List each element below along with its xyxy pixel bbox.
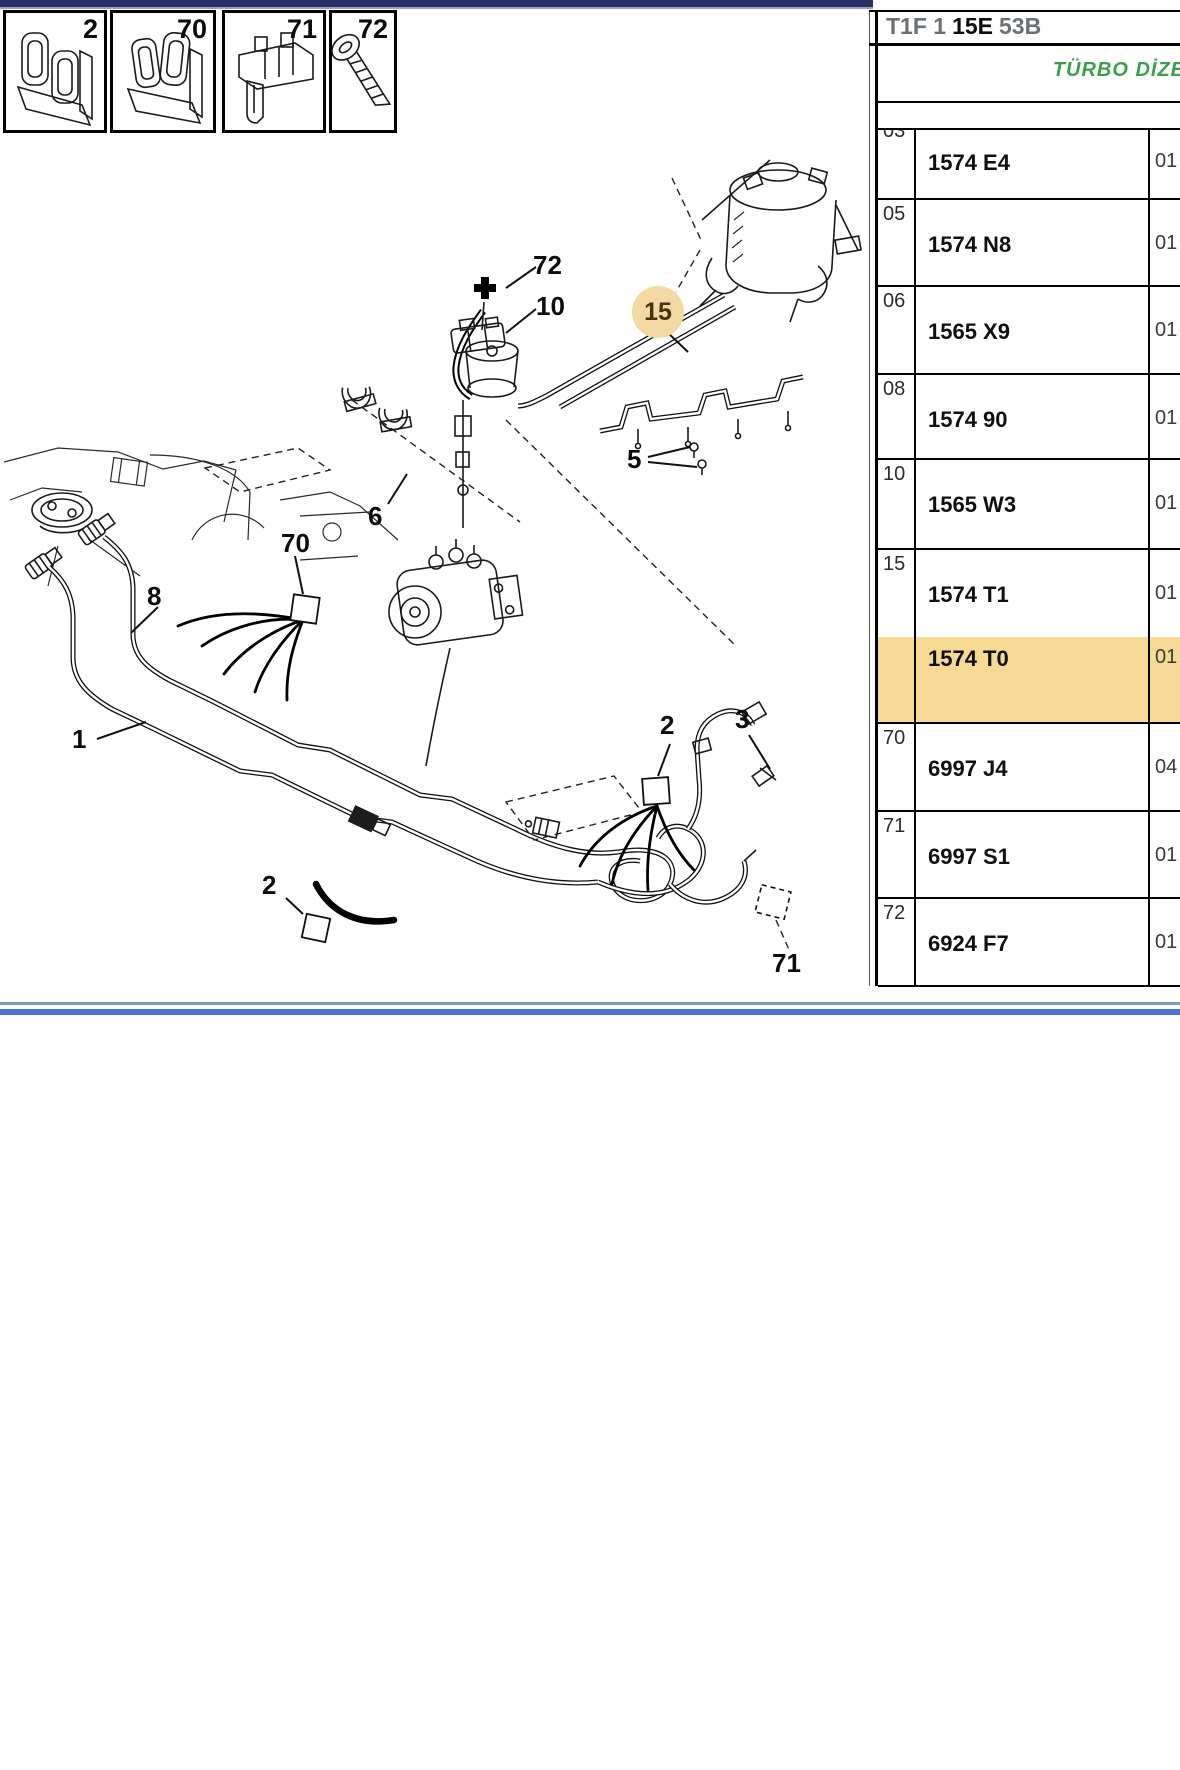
row-index: [878, 637, 916, 722]
routing-swoosh: [316, 884, 394, 921]
row-quantity: 01: [1148, 287, 1180, 373]
pipe-clips-item6: [341, 380, 412, 431]
row-part-number: 1574 E4: [916, 130, 1148, 198]
table-row[interactable]: 05 1574 N8 01: [878, 198, 1180, 285]
callout-70[interactable]: 70: [281, 530, 310, 556]
catalog-subtitle-box: TÜRBO DİZE: [878, 46, 1180, 101]
row-index: 70: [878, 724, 916, 810]
fuel-tank-sender: [32, 493, 92, 533]
row-quantity: 01: [1148, 375, 1180, 458]
row-quantity: 01: [1148, 637, 1180, 722]
bottom-border-line-teal: [0, 1002, 1180, 1005]
row-index: 06: [878, 287, 916, 373]
marker-diamond-71: [755, 885, 791, 919]
row-index: 03: [878, 130, 916, 198]
catalog-subtitle: TÜRBO DİZE: [1053, 59, 1180, 82]
screw-position-cross: [474, 277, 496, 299]
row-quantity: 01: [1148, 899, 1180, 985]
row-index: 15: [878, 550, 916, 637]
callout-6[interactable]: 6: [368, 503, 382, 529]
routing-fan-lines: [178, 614, 694, 922]
subtitle-bottom-line: [875, 101, 1180, 103]
callout-10[interactable]: 10: [536, 293, 565, 319]
code-main: 15E: [952, 13, 993, 40]
callout-3[interactable]: 3: [735, 706, 749, 732]
catalog-code-header: T1F 1 15E 53B: [878, 12, 1180, 41]
row-part-number: 6997 J4: [916, 724, 1148, 810]
table-outer-line: [869, 10, 870, 986]
bottom-border-line-blue: [0, 1009, 1180, 1015]
row-index: 71: [878, 812, 916, 897]
row-quantity: 01: [1148, 460, 1180, 548]
callout-1[interactable]: 1: [72, 726, 86, 752]
tank-pipe-connectors: [24, 512, 116, 580]
injection-pump: [389, 539, 525, 647]
parts-catalog-page: 2 70 71: [0, 0, 1180, 1770]
row-part-number: 1574 90: [916, 375, 1148, 458]
callout-8[interactable]: 8: [147, 583, 161, 609]
code-prefix: T1F 1: [886, 13, 946, 40]
callout-15-highlighted[interactable]: 15: [632, 286, 684, 338]
fuel-line-diagram: [0, 0, 876, 1005]
table-row[interactable]: 72 6924 F7 01: [878, 897, 1180, 985]
table-row[interactable]: 71 6997 S1 01: [878, 810, 1180, 897]
table-row[interactable]: 03 1574 E4 01: [878, 128, 1180, 198]
row-part-number: 1574 T1: [916, 550, 1148, 637]
callout-2-mid[interactable]: 2: [660, 712, 674, 738]
row-quantity: 01: [1148, 200, 1180, 285]
callout-72[interactable]: 72: [533, 252, 562, 278]
table-row[interactable]: 70 6997 J4 04: [878, 722, 1180, 810]
row-part-number: 1574 T0: [916, 637, 1148, 722]
table-row[interactable]: 15 1574 T1 01: [878, 548, 1180, 637]
row-quantity: 01: [1148, 130, 1180, 198]
row-part-number: 6924 F7: [916, 899, 1148, 985]
callout-5[interactable]: 5: [627, 446, 641, 472]
row-index: 72: [878, 899, 916, 985]
row-index: 05: [878, 200, 916, 285]
marker-square-2-mid: [642, 777, 670, 805]
row-part-number: 1565 W3: [916, 460, 1148, 548]
row-quantity: 04: [1148, 724, 1180, 810]
row-index: 10: [878, 460, 916, 548]
callout-2-left[interactable]: 2: [262, 872, 276, 898]
table-row[interactable]: 06 1565 X9 01: [878, 285, 1180, 373]
row-part-number: 6997 S1: [916, 812, 1148, 897]
row-quantity: 01: [1148, 550, 1180, 637]
callout-markers: [97, 267, 791, 952]
row-index: 08: [878, 375, 916, 458]
code-suffix: 53B: [999, 13, 1041, 40]
row-part-number: 1565 X9: [916, 287, 1148, 373]
table-row-selected[interactable]: 1574 T0 01: [878, 637, 1180, 722]
row-part-number: 1574 N8: [916, 200, 1148, 285]
marker-square-70: [290, 594, 319, 623]
row-quantity: 01: [1148, 812, 1180, 897]
table-row[interactable]: 10 1565 W3 01: [878, 458, 1180, 548]
table-row[interactable]: 08 1574 90 01: [878, 373, 1180, 458]
car-body-sketch: [4, 448, 398, 586]
marker-square-2-left: [302, 914, 330, 942]
parts-table: 03 1574 E4 01 05 1574 N8 01 06 1565 X9 0…: [878, 128, 1180, 987]
callout-71[interactable]: 71: [772, 950, 801, 976]
